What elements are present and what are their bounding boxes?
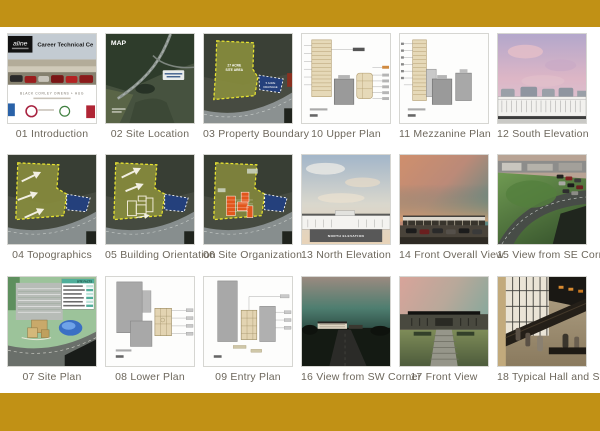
- thumbnail-15-image[interactable]: [497, 154, 587, 245]
- thumbnail-03-image[interactable]: 27 ACRE SITE AREA 5 ACRE DRAINAGE: [203, 33, 293, 124]
- south-elevation-art: [498, 34, 586, 123]
- gallery-item-03-property-boundary[interactable]: 27 ACRE SITE AREA 5 ACRE DRAINAGE 03 Pro…: [203, 33, 293, 154]
- thumbnail-caption: 10 Upper Plan: [301, 128, 391, 141]
- gallery-item-01-introduction[interactable]: aline Career Technical Ce BLACK CORLEY O…: [7, 33, 97, 154]
- mezzanine-plan-art: [400, 34, 488, 123]
- thumbnail-caption: 08 Lower Plan: [105, 371, 195, 384]
- thumbnail-caption: 13 North Elevation: [301, 249, 391, 262]
- view-se-corner-art: [498, 155, 586, 244]
- topographics-art: [8, 155, 96, 244]
- thumbnail-caption: 01 Introduction: [7, 128, 97, 141]
- gallery-item-04-topographics[interactable]: 04 Topographics: [7, 154, 97, 276]
- thumbnail-caption: 14 Front Overall View: [399, 249, 489, 262]
- thumbnail-16-image[interactable]: [301, 276, 391, 367]
- thumbnail-caption: 18 Typical Hall and Stair: [497, 371, 587, 384]
- thumbnail-09-image[interactable]: [203, 276, 293, 367]
- bottom-accent-bar: [0, 393, 600, 431]
- top-accent-bar: [0, 0, 600, 27]
- thumbnail-12-image[interactable]: [497, 33, 587, 124]
- thumbnail-caption: 12 South Elevation: [497, 128, 587, 141]
- gallery-item-12-south-elevation[interactable]: 12 South Elevation: [497, 33, 587, 154]
- thumbnail-08-image[interactable]: [105, 276, 195, 367]
- gallery-item-10-upper-plan[interactable]: 10 Upper Plan: [301, 33, 391, 154]
- thumbnail-07-image[interactable]: SITE FACTS: [7, 276, 97, 367]
- intro-firm-text: BLACK CORLEY OWENS + HUG: [20, 92, 84, 96]
- entry-plan-art: [204, 277, 292, 366]
- thumbnail-caption: 02 Site Location: [105, 128, 195, 141]
- site-area-text-2: SITE AREA: [226, 68, 244, 72]
- gallery-item-05-building-orientation[interactable]: 05 Building Orientation: [105, 154, 195, 276]
- thumbnail-caption: 07 Site Plan: [7, 371, 97, 384]
- site-facts-header-text: SITE FACTS: [77, 279, 92, 283]
- thumbnail-caption: 15 View from SE Corner: [497, 249, 587, 262]
- gallery-item-15-view-from-se-corner[interactable]: 15 View from SE Corner: [497, 154, 587, 276]
- thumbnail-caption: 06 Site Organization: [203, 249, 293, 262]
- thumbnail-17-image[interactable]: [399, 276, 489, 367]
- gallery-item-07-site-plan[interactable]: SITE FACTS 07 Site Plan: [7, 276, 97, 391]
- gallery-item-17-front-view[interactable]: 17 Front View: [399, 276, 489, 391]
- lower-plan-art: [106, 277, 194, 366]
- thumbnail-13-image[interactable]: NORTH ELEVATION: [301, 154, 391, 245]
- thumbnail-05-image[interactable]: [105, 154, 195, 245]
- gallery-item-06-site-organization[interactable]: 06 Site Organization: [203, 154, 293, 276]
- upper-plan-art: [302, 34, 390, 123]
- site-organization-art: [204, 155, 292, 244]
- site-location-map-art: MAP: [106, 34, 194, 123]
- thumbnail-04-image[interactable]: [7, 154, 97, 245]
- front-view-art: [400, 277, 488, 366]
- thumbnail-caption: 05 Building Orientation: [105, 249, 195, 262]
- thumbnail-18-image[interactable]: [497, 276, 587, 367]
- typical-hall-stair-art: [498, 277, 586, 366]
- gallery-item-16-view-from-sw-corner[interactable]: 16 View from SW Corner: [301, 276, 391, 391]
- gallery-item-18-typical-hall-and-stair[interactable]: 18 Typical Hall and Stair: [497, 276, 587, 391]
- site-plan-art: SITE FACTS: [8, 277, 96, 366]
- thumbnail-caption: 04 Topographics: [7, 249, 97, 262]
- intro-title-text: Career Technical Ce: [37, 43, 94, 49]
- thumbnail-caption: 03 Property Boundary: [203, 128, 293, 141]
- thumbnail-11-image[interactable]: [399, 33, 489, 124]
- thumbnail-14-image[interactable]: [399, 154, 489, 245]
- drainage-text-1: 5 ACRE: [266, 81, 276, 85]
- front-overall-view-art: [400, 155, 488, 244]
- site-area-text-1: 27 ACRE: [227, 63, 242, 67]
- map-label-text: MAP: [111, 40, 127, 47]
- thumbnail-01-image[interactable]: aline Career Technical Ce BLACK CORLEY O…: [7, 33, 97, 124]
- thumbnail-02-image[interactable]: MAP: [105, 33, 195, 124]
- thumbnail-gallery: aline Career Technical Ce BLACK CORLEY O…: [7, 33, 587, 391]
- gallery-item-11-mezzanine-plan[interactable]: 11 Mezzanine Plan: [399, 33, 489, 154]
- drainage-text-2: DRAINAGE: [263, 85, 277, 89]
- thumbnail-10-image[interactable]: [301, 33, 391, 124]
- gallery-item-08-lower-plan[interactable]: 08 Lower Plan: [105, 276, 195, 391]
- north-elevation-band-text: NORTH ELEVATION: [328, 234, 365, 238]
- property-boundary-art: 27 ACRE SITE AREA 5 ACRE DRAINAGE: [204, 34, 292, 123]
- thumbnail-caption: 09 Entry Plan: [203, 371, 293, 384]
- gallery-item-14-front-overall-view[interactable]: 14 Front Overall View: [399, 154, 489, 276]
- gallery-item-09-entry-plan[interactable]: 09 Entry Plan: [203, 276, 293, 391]
- gallery-item-02-site-location[interactable]: MAP 02 Site Location: [105, 33, 195, 154]
- intro-slide-art: aline Career Technical Ce BLACK CORLEY O…: [8, 34, 96, 123]
- gallery-item-13-north-elevation[interactable]: NORTH ELEVATION 13 North Elevation: [301, 154, 391, 276]
- intro-brand-text: aline: [13, 41, 28, 48]
- thumbnail-06-image[interactable]: [203, 154, 293, 245]
- building-orientation-art: [106, 155, 194, 244]
- north-elevation-art: NORTH ELEVATION: [302, 155, 390, 244]
- thumbnail-caption: 17 Front View: [399, 371, 489, 384]
- thumbnail-caption: 16 View from SW Corner: [301, 371, 391, 384]
- thumbnail-gallery-page: aline Career Technical Ce BLACK CORLEY O…: [0, 0, 600, 431]
- thumbnail-caption: 11 Mezzanine Plan: [399, 128, 489, 141]
- view-sw-corner-art: [302, 277, 390, 366]
